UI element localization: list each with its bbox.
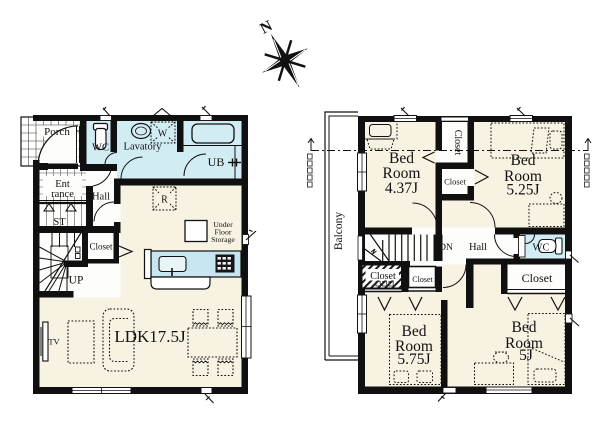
svg-text:W: W bbox=[158, 129, 168, 140]
svg-text:Closet: Closet bbox=[444, 177, 466, 187]
svg-text:5.25J: 5.25J bbox=[506, 182, 539, 199]
svg-text:4.37J: 4.37J bbox=[385, 180, 418, 197]
svg-text:Closet: Closet bbox=[452, 130, 463, 156]
svg-text:TV: TV bbox=[48, 337, 60, 347]
svg-text:Closet: Closet bbox=[89, 242, 113, 252]
svg-text:Closet: Closet bbox=[412, 275, 433, 284]
svg-text:Closet: Closet bbox=[522, 271, 553, 285]
svg-text:rance: rance bbox=[51, 189, 74, 200]
svg-text:Hall: Hall bbox=[469, 242, 487, 253]
svg-text:UB: UB bbox=[208, 155, 225, 169]
svg-text:Storage: Storage bbox=[211, 235, 235, 244]
svg-text:5J: 5J bbox=[519, 347, 533, 364]
svg-text:WC: WC bbox=[92, 143, 109, 154]
svg-text:WC: WC bbox=[533, 243, 550, 254]
svg-text:LDK17.5J: LDK17.5J bbox=[114, 327, 186, 346]
svg-text:Lavatory: Lavatory bbox=[124, 142, 163, 153]
svg-text:Balcony: Balcony bbox=[333, 212, 345, 251]
svg-text:Closet: Closet bbox=[370, 271, 396, 282]
svg-text:Bed: Bed bbox=[512, 319, 537, 336]
svg-text:Bed: Bed bbox=[511, 152, 536, 169]
svg-text:Hall: Hall bbox=[92, 192, 110, 203]
svg-text:5.75J: 5.75J bbox=[397, 351, 430, 368]
svg-text:R: R bbox=[161, 195, 168, 206]
svg-text:DN: DN bbox=[439, 243, 453, 253]
svg-text:UP: UP bbox=[69, 275, 84, 287]
